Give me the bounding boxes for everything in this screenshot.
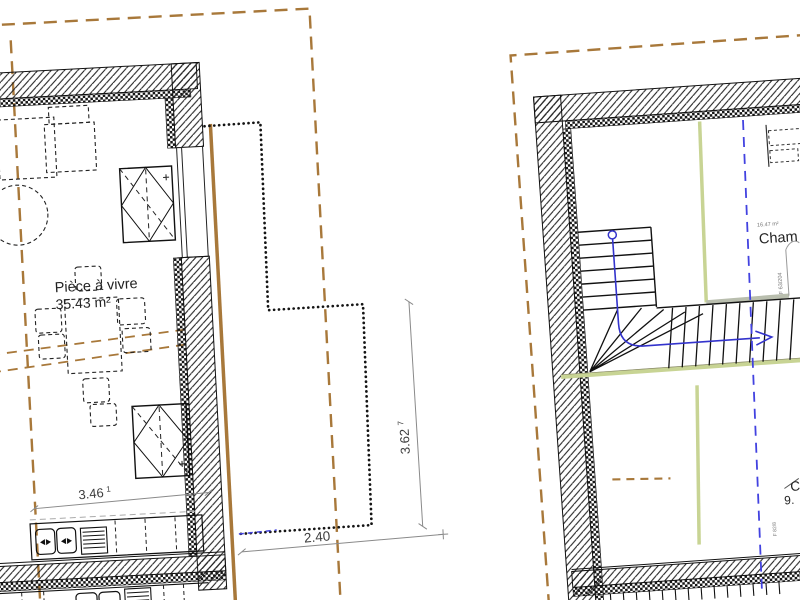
window-label-lower: F 82/8	[772, 522, 779, 537]
dimension-value: 2.40	[303, 528, 330, 545]
floorplan-canvas: Pièce à vivre 35.43 m² 3.46 1 2.40 3.62 …	[0, 0, 800, 600]
floorplan-page: Pièce à vivre 35.43 m² 3.46 1 2.40 3.62 …	[0, 0, 800, 600]
dimension-value: 3.62	[397, 429, 413, 455]
room-label-cut: C	[790, 478, 800, 494]
room-label-name: Cham	[758, 229, 798, 248]
room-area-cut: 9.	[784, 493, 795, 508]
dimension-value: 3.46	[78, 485, 105, 502]
wall-right-upper	[171, 62, 203, 147]
room-label-area: 35.43 m²	[55, 293, 111, 312]
